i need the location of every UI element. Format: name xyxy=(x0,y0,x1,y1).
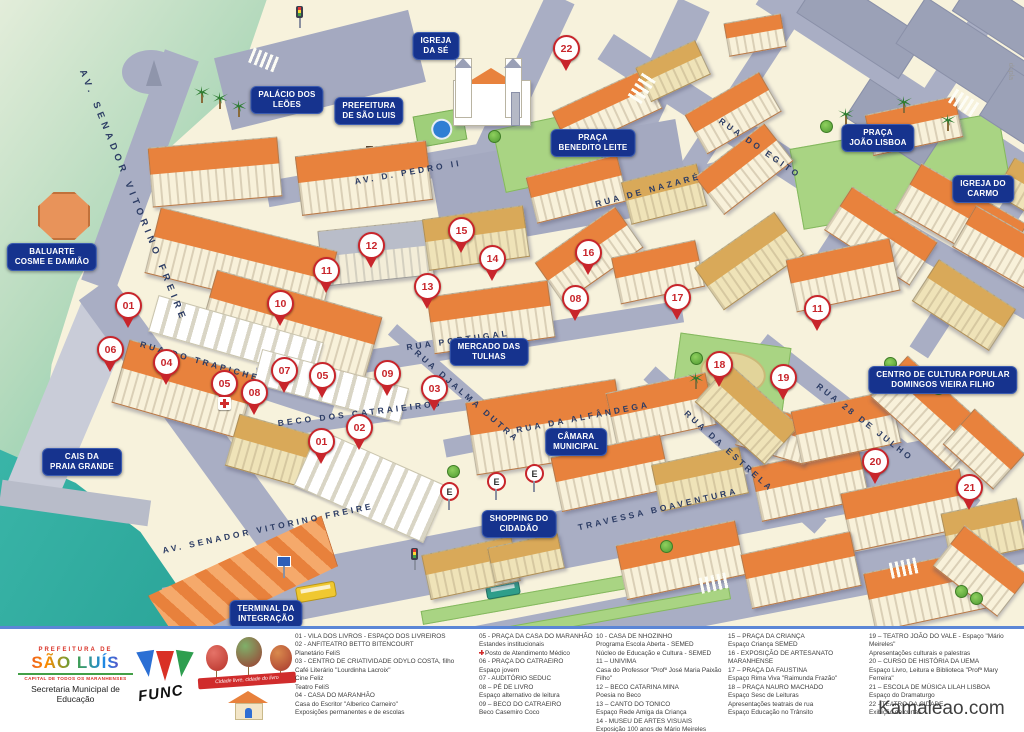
legend-item: 16 - EXPOSIÇÃO DE ARTESANATO MARANHENSE xyxy=(728,650,867,667)
map-marker-08[interactable]: 08 xyxy=(241,379,268,419)
print-note: dupla xyxy=(1007,63,1014,80)
igreja-da-se-building xyxy=(441,50,551,130)
map-marker-07[interactable]: 07 xyxy=(271,357,298,397)
legend-item: 10 - CASA DE NHOZINHO xyxy=(596,633,726,641)
legend-item: Espaço Sesc de Leituras xyxy=(728,692,867,700)
bus-stop-sign xyxy=(277,556,291,567)
map-poster: AV. SENADOR VITORINO FREIREAV. SENADOR V… xyxy=(0,0,1024,732)
legend-item: 21 – ESCOLA DE MÚSICA LILAH LISBOA xyxy=(869,684,1021,692)
balloon-icon xyxy=(206,645,228,671)
map-marker-20[interactable]: 20 xyxy=(862,448,889,488)
palm-tree-icon xyxy=(688,372,704,390)
legend-item: 13 – CANTO DO TONICO xyxy=(596,701,726,709)
legend-item: Casa do Professor "Profº José Maria Paix… xyxy=(596,667,726,684)
legend-item: 05 - PRAÇA DA CASA DO MARANHÃO xyxy=(479,633,594,641)
legend-item: Casa do Escritor "Alberico Carneiro" xyxy=(295,701,477,709)
legend-item: 17 – PRAÇA DA FAUSTINA xyxy=(728,667,867,675)
place-label-centro-cultura-popular: CENTRO DE CULTURA POPULARDOMINGOS VIEIRA… xyxy=(868,366,1017,394)
parking-sign: E xyxy=(440,482,459,501)
parking-sign: E xyxy=(525,464,544,483)
map-marker-13[interactable]: 13 xyxy=(414,273,441,313)
tree-icon xyxy=(970,592,983,605)
legend-item: Exposição 100 anos de Mário Meireles xyxy=(596,726,726,732)
legend-item: Espaço jovem xyxy=(479,667,594,675)
legend-column-1: 01 - VILA DOS LIVROS - ESPAÇO DOS LIVREI… xyxy=(295,633,477,718)
traffic-light-icon xyxy=(296,6,303,18)
tree-icon xyxy=(447,465,460,478)
flag-icon xyxy=(172,650,193,678)
map-canvas: AV. SENADOR VITORINO FREIREAV. SENADOR V… xyxy=(0,0,1024,629)
tree-icon xyxy=(660,540,673,553)
map-marker-11[interactable]: 11 xyxy=(804,295,831,335)
legend-item: Posto de Atendimento Médico xyxy=(479,650,594,658)
legend-item: 09 – BECO DO CATRAEIRO xyxy=(479,701,594,709)
legend-column-4: 15 – PRAÇA DA CRIANÇAEspaço Criança SEME… xyxy=(728,633,867,718)
prefeitura-name: SÃO LUÍS xyxy=(18,653,133,673)
map-marker-05[interactable]: 05 xyxy=(211,370,238,410)
legend-item: Espaço Rima Viva "Raimunda Frazão" xyxy=(728,675,867,683)
balloons-logo: Cidade livre, cidade do livro xyxy=(198,637,298,723)
legend-item: Beco Casemiro Coco xyxy=(479,709,594,717)
flag-icon xyxy=(156,651,174,681)
legend-item: Planetário FeliS xyxy=(295,650,477,658)
balloon-icon xyxy=(270,645,292,671)
legend-item: Núcleo de Educação e Cultura - SEMED xyxy=(596,650,726,658)
map-marker-21[interactable]: 21 xyxy=(956,474,983,514)
place-label-prefeitura-de-sao-luis: PREFEITURADE SÃO LUIS xyxy=(334,97,403,125)
legend-item: Espaço Rede Amiga da Criança xyxy=(596,709,726,717)
legend-item: Espaço Criança SEMED xyxy=(728,641,867,649)
red-cross-icon xyxy=(218,397,231,410)
place-label-praca-benedito-leite: PRAÇABENEDITO LEITE xyxy=(551,129,636,157)
map-marker-10[interactable]: 10 xyxy=(267,290,294,330)
palm-tree-icon xyxy=(194,86,210,104)
tree-icon xyxy=(955,585,968,598)
legend-item: 12 – BECO CATARINA MINA xyxy=(596,684,726,692)
map-marker-09[interactable]: 09 xyxy=(374,360,401,400)
red-cross-icon xyxy=(479,650,484,655)
house-icon xyxy=(228,691,268,719)
legend-item: 14 - MUSEU DE ARTES VISUAIS xyxy=(596,718,726,726)
legend-item: 04 - CASA DO MARANHÃO xyxy=(295,692,477,700)
prefeitura-tagline: CAPITAL DE TODOS OS MARANHENSES xyxy=(18,673,133,681)
palm-tree-icon xyxy=(231,100,247,118)
map-marker-08[interactable]: 08 xyxy=(562,285,589,325)
palm-tree-icon xyxy=(940,114,956,132)
legend-item: Café Literário "Lourdinha Lacroix" xyxy=(295,667,477,675)
map-marker-12[interactable]: 12 xyxy=(358,232,385,272)
map-marker-04[interactable]: 04 xyxy=(153,349,180,389)
place-label-igreja-da-se: IGREJADA SÉ xyxy=(413,32,460,60)
legend-column-3: 10 - CASA DE NHOZINHOPrograma Escola Abe… xyxy=(596,633,726,732)
place-label-igreja-do-carmo: IGREJA DOCARMO xyxy=(952,175,1014,203)
legend-item: Apresentações teatrais de rua xyxy=(728,701,867,709)
map-marker-16[interactable]: 16 xyxy=(575,239,602,279)
tree-icon xyxy=(820,120,833,133)
prefeitura-logo: PREFEITURA DE SÃO LUÍS CAPITAL DE TODOS … xyxy=(18,647,133,704)
place-label-praca-joao-lisboa: PRAÇAJOÃO LISBOA xyxy=(841,124,914,152)
legend-column-2: 05 - PRAÇA DA CASA DO MARANHÃOEstandes i… xyxy=(479,633,594,718)
parking-sign: E xyxy=(487,472,506,491)
map-marker-05[interactable]: 05 xyxy=(309,362,336,402)
legend-item: Cine Feliz xyxy=(295,675,477,683)
building xyxy=(786,238,901,313)
legend-item: 08 – PÉ DE LIVRO xyxy=(479,684,594,692)
column-monument xyxy=(511,92,520,126)
legend-item: 15 – PRAÇA DA CRIANÇA xyxy=(728,633,867,641)
obelisk-monument xyxy=(146,52,162,86)
balloon-icon xyxy=(236,637,262,667)
building xyxy=(148,136,283,207)
legend-item: 19 – TEATRO JOÃO DO VALE - Espaço "Mário… xyxy=(869,633,1021,650)
map-marker-01[interactable]: 01 xyxy=(308,428,335,468)
legend-bar: PREFEITURA DE SÃO LUÍS CAPITAL DE TODOS … xyxy=(0,629,1024,732)
map-marker-15[interactable]: 15 xyxy=(448,217,475,257)
flag-icon xyxy=(136,650,157,678)
place-label-terminal-da-integracao: TERMINAL DAINTEGRAÇÃO xyxy=(229,600,302,628)
map-marker-11[interactable]: 11 xyxy=(313,257,340,297)
place-label-mercado-das-tulhas: MERCADO DASTULHAS xyxy=(450,338,529,366)
palm-tree-icon xyxy=(896,96,912,114)
place-label-cais-da-praia-grande: CAIS DAPRAIA GRANDE xyxy=(42,448,122,476)
map-marker-03[interactable]: 03 xyxy=(421,375,448,415)
legend-item: Espaço Educação no Trânsito xyxy=(728,709,867,717)
legend-item: 07 - AUDITÓRIO SEDUC xyxy=(479,675,594,683)
prefeitura-dept: Secretaria Municipal de Educação xyxy=(18,684,133,704)
palm-tree-icon xyxy=(212,92,228,110)
legend-item: Exposições permanentes e de escolas xyxy=(295,709,477,717)
map-marker-22[interactable]: 22 xyxy=(553,35,580,75)
legend-item: Poesia no Beco xyxy=(596,692,726,700)
place-label-baluarte-cosme-e-damiao: BALUARTECOSME E DAMIÃO xyxy=(7,243,97,271)
map-marker-01[interactable]: 01 xyxy=(115,292,142,332)
legend-item: 06 - PRAÇA DO CATRAEIRO xyxy=(479,658,594,666)
legend-item: 11 – UNIVIMA xyxy=(596,658,726,666)
place-label-camara-municipal: CÂMARAMUNICIPAL xyxy=(545,428,607,456)
map-marker-02[interactable]: 02 xyxy=(346,414,373,454)
legend-item: Programa Escola Aberta - SEMED xyxy=(596,641,726,649)
place-label-shopping-do-cidadao: SHOPPING DOCIDADÃO xyxy=(482,510,557,538)
legend-item: 03 - CENTRO DE CRIATIVIDADE ODYLO COSTA,… xyxy=(295,658,477,666)
traffic-light-icon xyxy=(411,548,418,560)
func-logo: FUNC xyxy=(136,651,196,713)
legend-item: Espaço alternativo de leitura xyxy=(479,692,594,700)
legend-item: 20 – CURSO DE HISTÓRIA DA UEMA xyxy=(869,658,1021,666)
legend-item: 01 - VILA DOS LIVROS - ESPAÇO DOS LIVREI… xyxy=(295,633,477,641)
legend-item: Espaço Livro, Leitura e Biblioteca "Prof… xyxy=(869,667,1021,684)
map-marker-19[interactable]: 19 xyxy=(770,364,797,404)
tree-icon xyxy=(488,130,501,143)
watermark: Kamaleao.com xyxy=(878,698,1005,720)
legend-item: Estandes institucionais xyxy=(479,641,594,649)
legend-item: 18 – PRAÇA NAURO MACHADO xyxy=(728,684,867,692)
tree-icon xyxy=(690,352,703,365)
map-marker-18[interactable]: 18 xyxy=(706,351,733,391)
ribbon-banner: Cidade livre, cidade do livro xyxy=(198,672,297,690)
legend-item: Teatro FeliS xyxy=(295,684,477,692)
map-marker-17[interactable]: 17 xyxy=(664,284,691,324)
map-marker-06[interactable]: 06 xyxy=(97,336,124,376)
map-marker-14[interactable]: 14 xyxy=(479,245,506,285)
func-name: FUNC xyxy=(137,682,185,705)
place-label-palacio-dos-leoes: PALÁCIO DOSLEÕES xyxy=(250,86,323,114)
legend-item: 02 - ANFITEATRO BETTO BITENCOURT xyxy=(295,641,477,649)
